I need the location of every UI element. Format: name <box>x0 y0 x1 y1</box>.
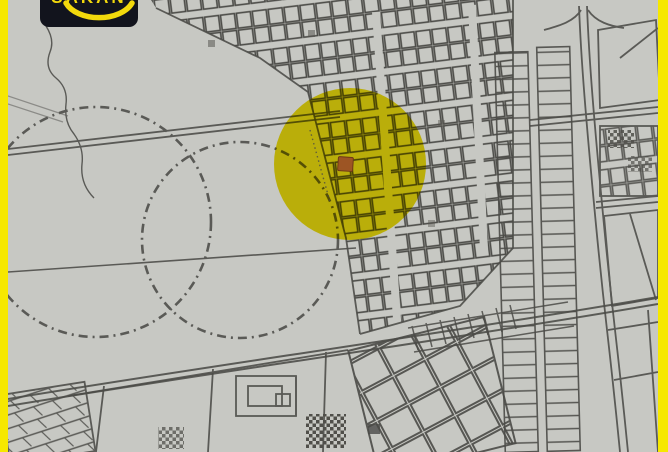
frame-border-right <box>658 0 668 452</box>
smile-icon <box>40 0 138 27</box>
cadastral-map[interactable] <box>8 0 658 452</box>
listing-photo: SAKAN <box>0 0 668 452</box>
property-location-marker[interactable] <box>338 157 354 172</box>
brand-logo: SAKAN <box>40 0 138 27</box>
map-drawing <box>8 0 658 452</box>
frame-border-left <box>0 0 8 452</box>
